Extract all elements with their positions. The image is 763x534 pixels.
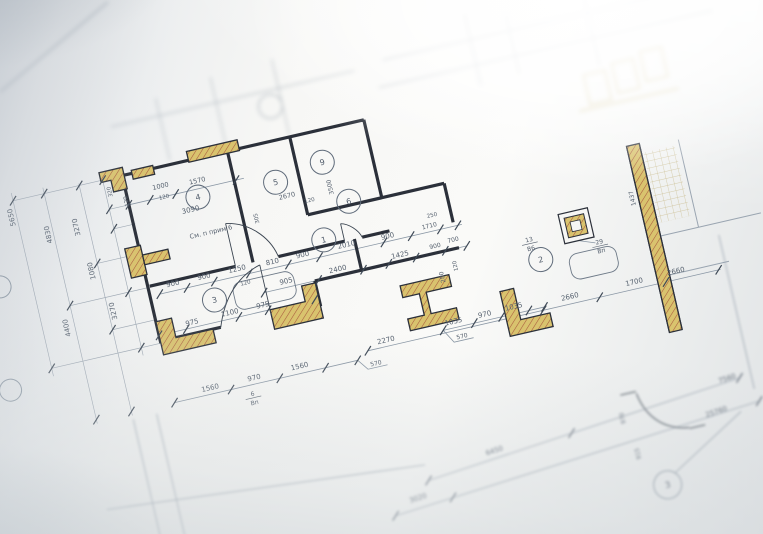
room-number: 4 [195,192,202,202]
room-number: 2 [537,255,544,265]
dimension-label: 250 [426,212,438,220]
room-number: 1 [320,235,327,245]
dimension-label: 280 [438,271,447,284]
dimension-label: 1710 [421,221,438,231]
dimension-label: 900 [197,271,212,282]
dimension-label: 900 [165,279,180,290]
dimension-label: 900 [429,242,442,251]
dimension-label: 120 [158,193,170,201]
dimension-label: 900 [295,250,310,261]
dimension-label: 1000 [152,180,170,192]
dimension-label: 975 [256,300,271,311]
fraction-label: 6Вп [244,389,263,408]
svg-text:В6: В6 [526,245,535,254]
dimension-label: 4830 [43,225,55,244]
dimension-lines [129,78,725,413]
dimension-label: 915 [634,447,643,460]
dimension-label: 970 [618,412,627,425]
room-number-marker: 6 [334,187,363,216]
dimension-label: 25760 [705,405,729,419]
fraction-label: 13В6 [521,235,540,254]
room-number: 9 [319,158,326,168]
dimension-label: 305 [253,212,261,224]
axis-marker [0,274,13,300]
dimension-label: 3270 [71,218,83,237]
dimension-label: 2670 [278,190,296,202]
dimension-label: 570 [370,359,383,368]
axis-marker [0,377,24,403]
dimension-label: 120 [240,279,252,287]
dimension-label: 1560 [201,382,220,394]
dimension-label: 120 [123,195,131,207]
dimension-label: 7560 [717,372,736,385]
dimension-label: 120 [304,197,316,205]
hatched-wall-details [99,52,682,450]
dimension-label: 1250 [228,263,247,275]
plan-sharp-layer: 1000120157030901203202670120350030590090… [0,29,763,483]
dimension-label: 2270 [376,335,395,347]
plan-note: См. п прим 6 [189,223,233,241]
dimension-label: 970 [247,373,262,384]
column-detail [558,208,594,244]
room-number: 5 [272,178,279,188]
dimension-label: 120 [452,260,460,272]
room-number-marker: 9 [308,148,337,177]
dimension-label: 4400 [61,318,73,337]
corner-blur-line [0,2,108,92]
dimension-label: 700 [447,236,460,245]
dimension-label: 2660 [560,291,579,303]
blueprint-photo: 1000120157030901203202670120350030590090… [0,0,763,534]
room-number: 3 [211,295,218,305]
dimension-label: 1080 [86,261,98,280]
dimension-label: 3020 [408,492,427,505]
dimension-label: 5650 [6,208,18,227]
svg-text:3: 3 [664,480,672,491]
floor-plan-sheet: 1000120157030901203202670120350030590090… [0,0,763,534]
near-door-arc [620,378,705,442]
axis-marker: 3 [651,468,685,502]
dimension-label: 2660 [666,266,685,278]
far-yellow-walls [569,45,678,111]
rotated-sheet: 1000120157030901203202670120350030590090… [0,0,763,534]
svg-text:6: 6 [250,390,255,398]
dimension-label: 905 [279,276,294,287]
room-number: 6 [345,197,352,207]
dimension-label: 3500 [325,179,335,196]
dimension-label: 970 [477,309,492,320]
dimension-label: 810 [265,257,280,268]
dimension-label: 1560 [290,361,309,373]
dimension-label: 3270 [107,301,119,320]
dimension-label: 570 [456,332,469,341]
dimension-label: 1700 [625,276,644,288]
svg-text:Вп: Вп [250,399,259,408]
dimension-label: 3090 [181,204,200,216]
dimension-label: 6450 [485,444,504,457]
svg-text:Вп: Вп [597,247,606,256]
